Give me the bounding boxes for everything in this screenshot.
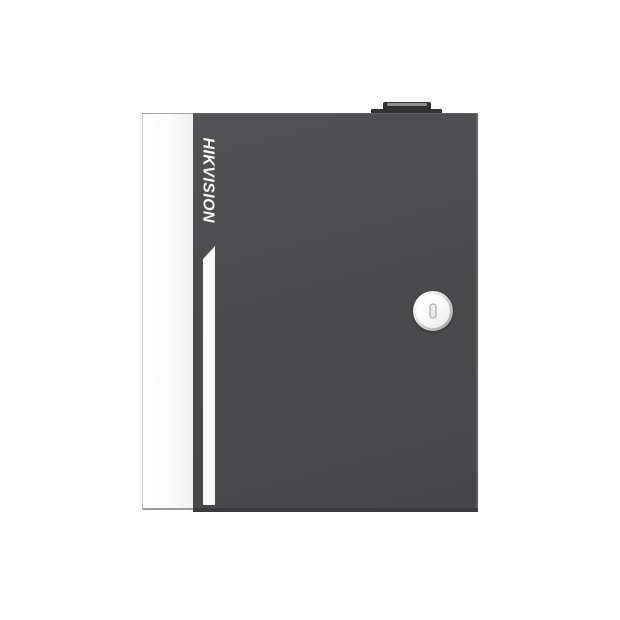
door-accent-stripe <box>203 246 215 505</box>
enclosure-side-panel <box>142 113 193 510</box>
door-cam-lock <box>413 291 453 331</box>
door-edge-highlight <box>476 113 478 508</box>
product-photo: HIKVISION <box>0 0 620 620</box>
brand-logo-text: HIKVISION <box>200 138 217 234</box>
lock-face <box>416 294 450 328</box>
access-controller-enclosure: HIKVISION <box>142 113 478 512</box>
keyhole-slot-icon <box>430 304 437 319</box>
